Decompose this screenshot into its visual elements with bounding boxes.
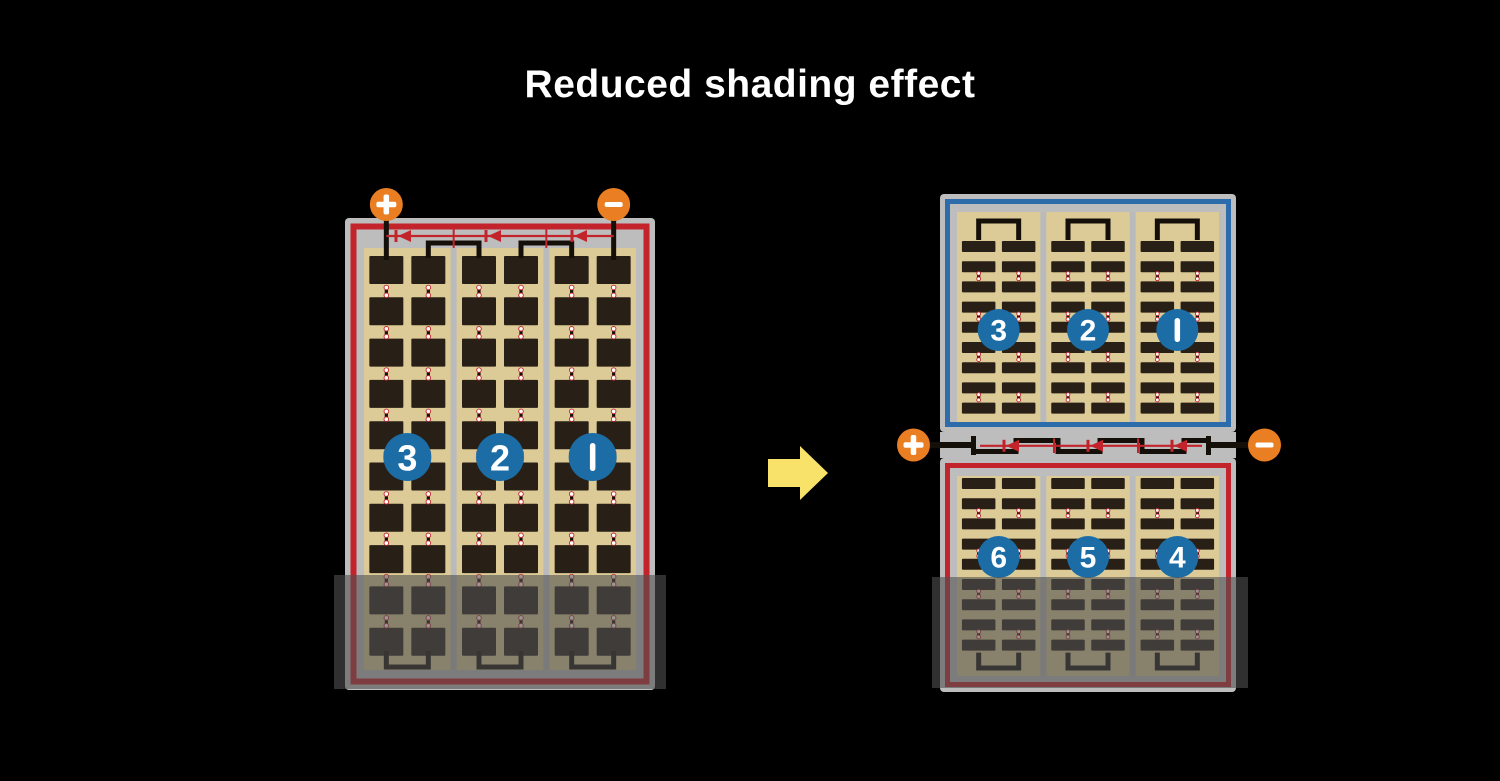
cell-connector-dot: [611, 500, 616, 505]
cell-connector-dot: [611, 327, 616, 332]
cell-connector-dot: [569, 533, 574, 538]
cell-connector-dot: [384, 417, 389, 422]
cell-connector-dot: [477, 327, 482, 332]
string-number-badge: [569, 433, 617, 481]
cell-connector-dot: [1017, 312, 1021, 316]
string-number-badge: 3: [383, 433, 431, 481]
solar-half-cell: [1091, 478, 1125, 489]
cell-connector-dot: [426, 541, 431, 546]
solar-half-cell: [962, 478, 996, 489]
cell-connector-dot: [384, 285, 389, 290]
string-number-badge: 4: [1156, 536, 1198, 578]
string-number-badge: 6: [978, 536, 1020, 578]
cell-connector-dot: [1195, 393, 1199, 397]
cell-connector-dot: [519, 327, 524, 332]
solar-half-cell: [1181, 382, 1215, 393]
minus-icon: [1256, 443, 1274, 448]
solar-half-cell: [1091, 241, 1125, 252]
cell-connector-dot: [977, 352, 981, 356]
solar-half-cell: [1002, 261, 1036, 272]
solar-half-cell: [1141, 281, 1175, 292]
cell-connector-dot: [1017, 272, 1021, 276]
cell-connector-dot: [1017, 277, 1021, 281]
cell-connector-dot: [477, 533, 482, 538]
cell-connector-dot: [1066, 509, 1070, 513]
solar-cell: [597, 297, 631, 325]
cell-connector-dot: [519, 334, 524, 339]
cell-connector-dot: [1155, 277, 1159, 281]
cell-connector-dot: [977, 398, 981, 402]
cell-connector-dot: [1106, 358, 1110, 362]
cell-connector-dot: [569, 293, 574, 298]
cell-connector-dot: [611, 417, 616, 422]
solar-cell: [555, 380, 589, 408]
cell-connector-dot: [477, 500, 482, 505]
solar-half-cell: [1181, 362, 1215, 373]
before-module: +−32: [334, 188, 666, 690]
cell-connector-dot: [1155, 393, 1159, 397]
solar-half-cell: [962, 261, 996, 272]
solar-cell: [597, 256, 631, 284]
solar-cell: [462, 380, 496, 408]
cell-connector-dot: [1066, 393, 1070, 397]
cell-connector-dot: [477, 376, 482, 381]
cell-connector-dot: [977, 514, 981, 518]
solar-half-cell: [1051, 478, 1085, 489]
cell-connector-dot: [611, 541, 616, 546]
positive-terminal: +: [370, 188, 403, 221]
cell-connector-dot: [1106, 352, 1110, 356]
solar-cell: [411, 504, 445, 532]
cell-connector-dot: [1017, 393, 1021, 397]
cell-connector-dot: [426, 417, 431, 422]
solar-cell: [597, 504, 631, 532]
cell-connector-dot: [519, 541, 524, 546]
solar-cell: [462, 545, 496, 573]
cell-connector-dot: [1106, 393, 1110, 397]
solar-half-cell: [1181, 281, 1215, 292]
cell-connector-dot: [384, 368, 389, 373]
cell-connector-dot: [426, 492, 431, 497]
string-number-badge: 5: [1067, 536, 1109, 578]
solar-cell: [597, 339, 631, 367]
string-number: 4: [1169, 542, 1186, 575]
cell-connector-dot: [384, 376, 389, 381]
solar-cell: [411, 380, 445, 408]
cell-connector-dot: [426, 409, 431, 414]
cell-connector-dot: [1106, 312, 1110, 316]
solar-half-cell: [1051, 261, 1085, 272]
solar-half-cell: [1051, 241, 1085, 252]
solar-cell: [462, 256, 496, 284]
cell-connector-dot: [1017, 514, 1021, 518]
solar-cell: [504, 339, 538, 367]
solar-half-cell: [1091, 362, 1125, 373]
solar-cell: [504, 504, 538, 532]
cell-connector-dot: [519, 417, 524, 422]
solar-half-cell: [1181, 403, 1215, 414]
solar-half-cell: [1091, 403, 1125, 414]
solar-half-cell: [1051, 281, 1085, 292]
solar-cell: [462, 297, 496, 325]
cell-connector-dot: [519, 293, 524, 298]
cell-connector-dot: [569, 368, 574, 373]
cell-connector-dot: [611, 368, 616, 373]
cell-connector-dot: [977, 277, 981, 281]
solar-half-cell: [1002, 382, 1036, 393]
string-number: [590, 443, 596, 471]
solar-cell: [369, 339, 403, 367]
solar-cell: [555, 256, 589, 284]
cell-connector-dot: [384, 409, 389, 414]
cell-connector-dot: [1106, 509, 1110, 513]
solar-half-cell: [1181, 498, 1215, 509]
solar-half-cell: [1002, 403, 1036, 414]
plus-icon: [911, 435, 917, 455]
cell-connector-dot: [611, 492, 616, 497]
minus-icon: [605, 202, 623, 207]
string-number-badge: 3: [978, 309, 1020, 351]
cell-connector-dot: [1155, 358, 1159, 362]
solar-half-cell: [1181, 518, 1215, 529]
bypass-diode-bar: [1171, 440, 1174, 452]
cell-connector-dot: [1066, 514, 1070, 518]
cell-connector-dot: [477, 541, 482, 546]
solar-half-cell: [1002, 478, 1036, 489]
cell-connector-dot: [569, 417, 574, 422]
cell-connector-dot: [569, 327, 574, 332]
solar-half-cell: [1051, 518, 1085, 529]
cell-connector-dot: [384, 327, 389, 332]
cell-connector-dot: [569, 376, 574, 381]
cell-connector-dot: [977, 272, 981, 276]
solar-half-cell: [1002, 281, 1036, 292]
cell-connector-dot: [1066, 398, 1070, 402]
solar-half-cell: [1002, 498, 1036, 509]
solar-cell: [369, 256, 403, 284]
solar-half-cell: [1051, 382, 1085, 393]
string-number-badge: 2: [1067, 309, 1109, 351]
cell-connector-dot: [426, 533, 431, 538]
bypass-diode-bar: [1003, 440, 1006, 452]
cell-connector-dot: [1017, 509, 1021, 513]
cell-connector-dot: [519, 368, 524, 373]
string-number: 5: [1080, 542, 1097, 575]
string-number: 3: [397, 438, 417, 479]
string-number: [1175, 318, 1181, 342]
cell-connector-dot: [384, 492, 389, 497]
solar-cell: [411, 297, 445, 325]
solar-half-cell: [1141, 362, 1175, 373]
solar-half-cell: [1091, 261, 1125, 272]
solar-cell: [555, 297, 589, 325]
solar-cell: [597, 545, 631, 573]
solar-half-cell: [962, 382, 996, 393]
solar-half-cell: [1141, 498, 1175, 509]
solar-half-cell: [1141, 261, 1175, 272]
cell-connector-dot: [384, 500, 389, 505]
string-divider: [1040, 212, 1046, 422]
string-number-badge: 2: [476, 433, 524, 481]
string-number: 2: [490, 438, 510, 479]
solar-half-cell: [1141, 478, 1175, 489]
cell-connector-dot: [477, 285, 482, 290]
solar-half-cell: [1051, 362, 1085, 373]
solar-half-cell: [962, 518, 996, 529]
after-module: 32+−654: [897, 194, 1281, 692]
cell-connector-dot: [569, 492, 574, 497]
solar-cell: [504, 256, 538, 284]
solar-half-cell: [1141, 241, 1175, 252]
cell-connector-dot: [1155, 398, 1159, 402]
solar-half-cell: [1002, 362, 1036, 373]
shading-effect-diagram: Reduced shading effect +−3232+−654: [0, 0, 1500, 781]
solar-half-cell: [1091, 382, 1125, 393]
cell-connector-dot: [1066, 277, 1070, 281]
transform-arrow: [768, 446, 828, 500]
bypass-diode-bar: [1087, 440, 1090, 452]
cell-connector-dot: [1155, 312, 1159, 316]
cell-connector-dot: [1155, 272, 1159, 276]
cell-connector-dot: [611, 285, 616, 290]
solar-cell: [411, 256, 445, 284]
cell-connector-dot: [384, 533, 389, 538]
cell-connector-dot: [426, 368, 431, 373]
cell-connector-dot: [977, 312, 981, 316]
solar-half-cell: [1002, 241, 1036, 252]
cell-connector-dot: [426, 334, 431, 339]
solar-cell: [555, 339, 589, 367]
cell-connector-dot: [477, 334, 482, 339]
cell-connector-dot: [1155, 514, 1159, 518]
solar-half-cell: [1091, 281, 1125, 292]
bypass-diode-bar: [485, 230, 488, 242]
cell-connector-dot: [1195, 277, 1199, 281]
solar-half-cell: [1181, 261, 1215, 272]
string-number: 2: [1080, 315, 1097, 348]
cell-connector-dot: [477, 409, 482, 414]
cell-connector-dot: [1195, 509, 1199, 513]
cell-connector-dot: [477, 417, 482, 422]
cell-connector-dot: [384, 334, 389, 339]
cell-connector-dot: [519, 500, 524, 505]
cell-connector-dot: [1106, 277, 1110, 281]
solar-cell: [369, 504, 403, 532]
cell-connector-dot: [611, 533, 616, 538]
solar-half-cell: [1051, 498, 1085, 509]
solar-half-cell: [1141, 382, 1175, 393]
cell-connector-dot: [569, 285, 574, 290]
cell-connector-dot: [519, 492, 524, 497]
diagram-canvas: +−3232+−654: [0, 0, 1500, 781]
cell-connector-dot: [569, 500, 574, 505]
solar-cell: [462, 339, 496, 367]
solar-cell: [369, 297, 403, 325]
cell-connector-dot: [1106, 272, 1110, 276]
cell-connector-dot: [1195, 358, 1199, 362]
cell-connector-dot: [1195, 514, 1199, 518]
solar-cell: [411, 545, 445, 573]
solar-half-cell: [962, 403, 996, 414]
solar-cell: [504, 380, 538, 408]
cell-connector-dot: [1155, 509, 1159, 513]
string-divider: [1130, 212, 1136, 422]
cell-connector-dot: [1017, 358, 1021, 362]
cell-connector-dot: [1066, 312, 1070, 316]
solar-half-cell: [1051, 403, 1085, 414]
solar-cell: [411, 339, 445, 367]
solar-half-cell: [1141, 403, 1175, 414]
cell-connector-dot: [569, 541, 574, 546]
right-arrow-icon: [768, 446, 828, 500]
solar-half-cell: [1002, 518, 1036, 529]
cell-connector-dot: [426, 293, 431, 298]
solar-cell: [369, 545, 403, 573]
cell-connector-dot: [1066, 358, 1070, 362]
cell-connector-dot: [519, 409, 524, 414]
solar-half-cell: [1141, 518, 1175, 529]
positive-terminal: +: [897, 429, 930, 462]
string-number: 3: [990, 315, 1007, 348]
cell-connector-dot: [384, 293, 389, 298]
solar-cell: [504, 545, 538, 573]
solar-cell: [555, 504, 589, 532]
cell-connector-dot: [477, 293, 482, 298]
cell-connector-dot: [1017, 352, 1021, 356]
negative-terminal: −: [597, 188, 630, 221]
shade-overlay: [932, 577, 1248, 688]
solar-half-cell: [1181, 241, 1215, 252]
bypass-diode-bar: [571, 230, 574, 242]
cell-connector-dot: [1195, 272, 1199, 276]
cell-connector-dot: [519, 376, 524, 381]
string-number: 6: [990, 542, 1007, 575]
cell-connector-dot: [426, 327, 431, 332]
cell-connector-dot: [611, 376, 616, 381]
solar-cell: [597, 380, 631, 408]
cell-connector-dot: [519, 285, 524, 290]
cell-connector-dot: [384, 541, 389, 546]
solar-half-cell: [962, 241, 996, 252]
solar-half-cell: [962, 498, 996, 509]
cell-connector-dot: [1106, 514, 1110, 518]
cell-connector-dot: [477, 368, 482, 373]
cell-connector-dot: [1195, 352, 1199, 356]
cell-connector-dot: [1066, 272, 1070, 276]
cell-connector-dot: [977, 509, 981, 513]
cell-connector-dot: [611, 409, 616, 414]
solar-cell: [555, 545, 589, 573]
cell-connector-dot: [1195, 312, 1199, 316]
cell-connector-dot: [1066, 352, 1070, 356]
cell-connector-dot: [977, 393, 981, 397]
bypass-diode-bar: [395, 230, 398, 242]
cell-connector-dot: [1017, 398, 1021, 402]
cell-connector-dot: [426, 500, 431, 505]
solar-cell: [504, 297, 538, 325]
solar-half-cell: [962, 281, 996, 292]
cell-connector-dot: [426, 376, 431, 381]
cell-connector-dot: [569, 409, 574, 414]
solar-half-cell: [1091, 498, 1125, 509]
solar-cell: [369, 380, 403, 408]
cell-connector-dot: [426, 285, 431, 290]
shade-overlay: [334, 575, 666, 689]
cell-connector-dot: [569, 334, 574, 339]
string-number-badge: [1156, 309, 1198, 351]
cell-connector-dot: [1155, 352, 1159, 356]
solar-half-cell: [1091, 518, 1125, 529]
cell-connector-dot: [1195, 398, 1199, 402]
negative-terminal: −: [1248, 429, 1281, 462]
cell-connector-dot: [1106, 398, 1110, 402]
cell-connector-dot: [977, 358, 981, 362]
cell-connector-dot: [611, 334, 616, 339]
cell-connector-dot: [611, 293, 616, 298]
cell-connector-dot: [477, 492, 482, 497]
plus-icon: [384, 195, 390, 215]
solar-cell: [462, 504, 496, 532]
solar-half-cell: [962, 362, 996, 373]
cell-connector-dot: [519, 533, 524, 538]
solar-half-cell: [1181, 478, 1215, 489]
